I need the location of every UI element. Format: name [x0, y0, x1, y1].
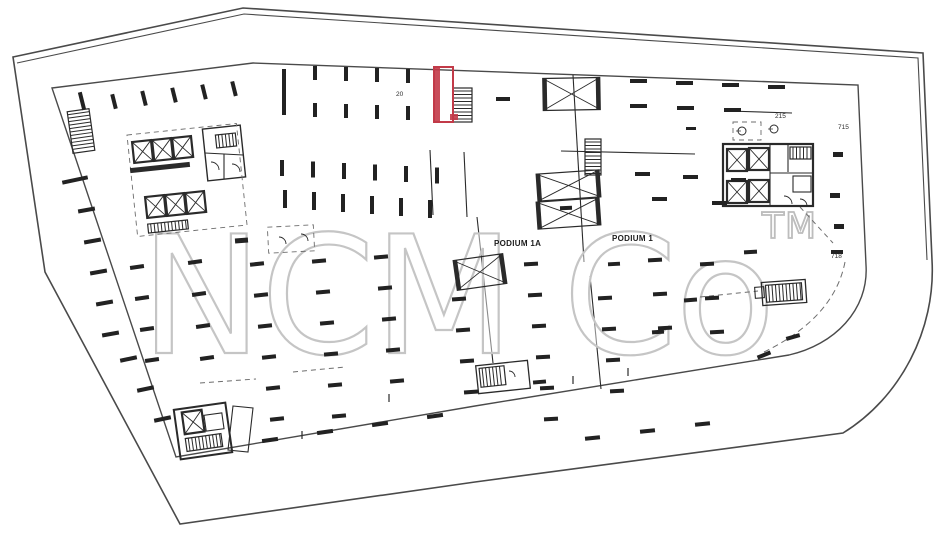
elevator-shaft [132, 140, 153, 163]
stall-number-label: 718 [831, 253, 842, 260]
door-swing [232, 164, 240, 172]
elevator-shaft [749, 180, 769, 202]
door-swing [211, 162, 219, 170]
wall-bar [130, 162, 190, 173]
dashed-curve [764, 262, 845, 352]
podium-1-label: PODIUM 1 [612, 234, 653, 243]
ramp [543, 78, 601, 111]
floor-plan-canvas: NCM Co TM PODIUM 1A PODIUM 1 20215715718 [0, 0, 951, 553]
floor-plan-document: NCM Co TM PODIUM 1A PODIUM 1 20215715718 [0, 0, 951, 553]
elevator-shaft [749, 148, 769, 170]
elevator-shaft [182, 410, 205, 435]
stall-number-label: 715 [838, 124, 849, 131]
stair [215, 133, 236, 148]
core-room [793, 176, 811, 192]
aisle-line [561, 151, 695, 154]
core-room [204, 413, 224, 431]
elevator-shaft [727, 149, 747, 171]
stall-number-label: 20 [396, 91, 404, 98]
stall-number-label: 215 [775, 113, 786, 120]
watermark-text: NCM Co [140, 201, 774, 392]
stair [790, 147, 811, 159]
podium-1a-label: PODIUM 1A [494, 239, 541, 248]
door-swing [784, 196, 792, 204]
stair [185, 434, 222, 452]
trademark-text: TM [761, 206, 817, 247]
stair [585, 139, 601, 175]
elevator-shaft [152, 138, 173, 161]
elevator-shaft [172, 136, 193, 159]
elevator-shaft [727, 181, 747, 203]
